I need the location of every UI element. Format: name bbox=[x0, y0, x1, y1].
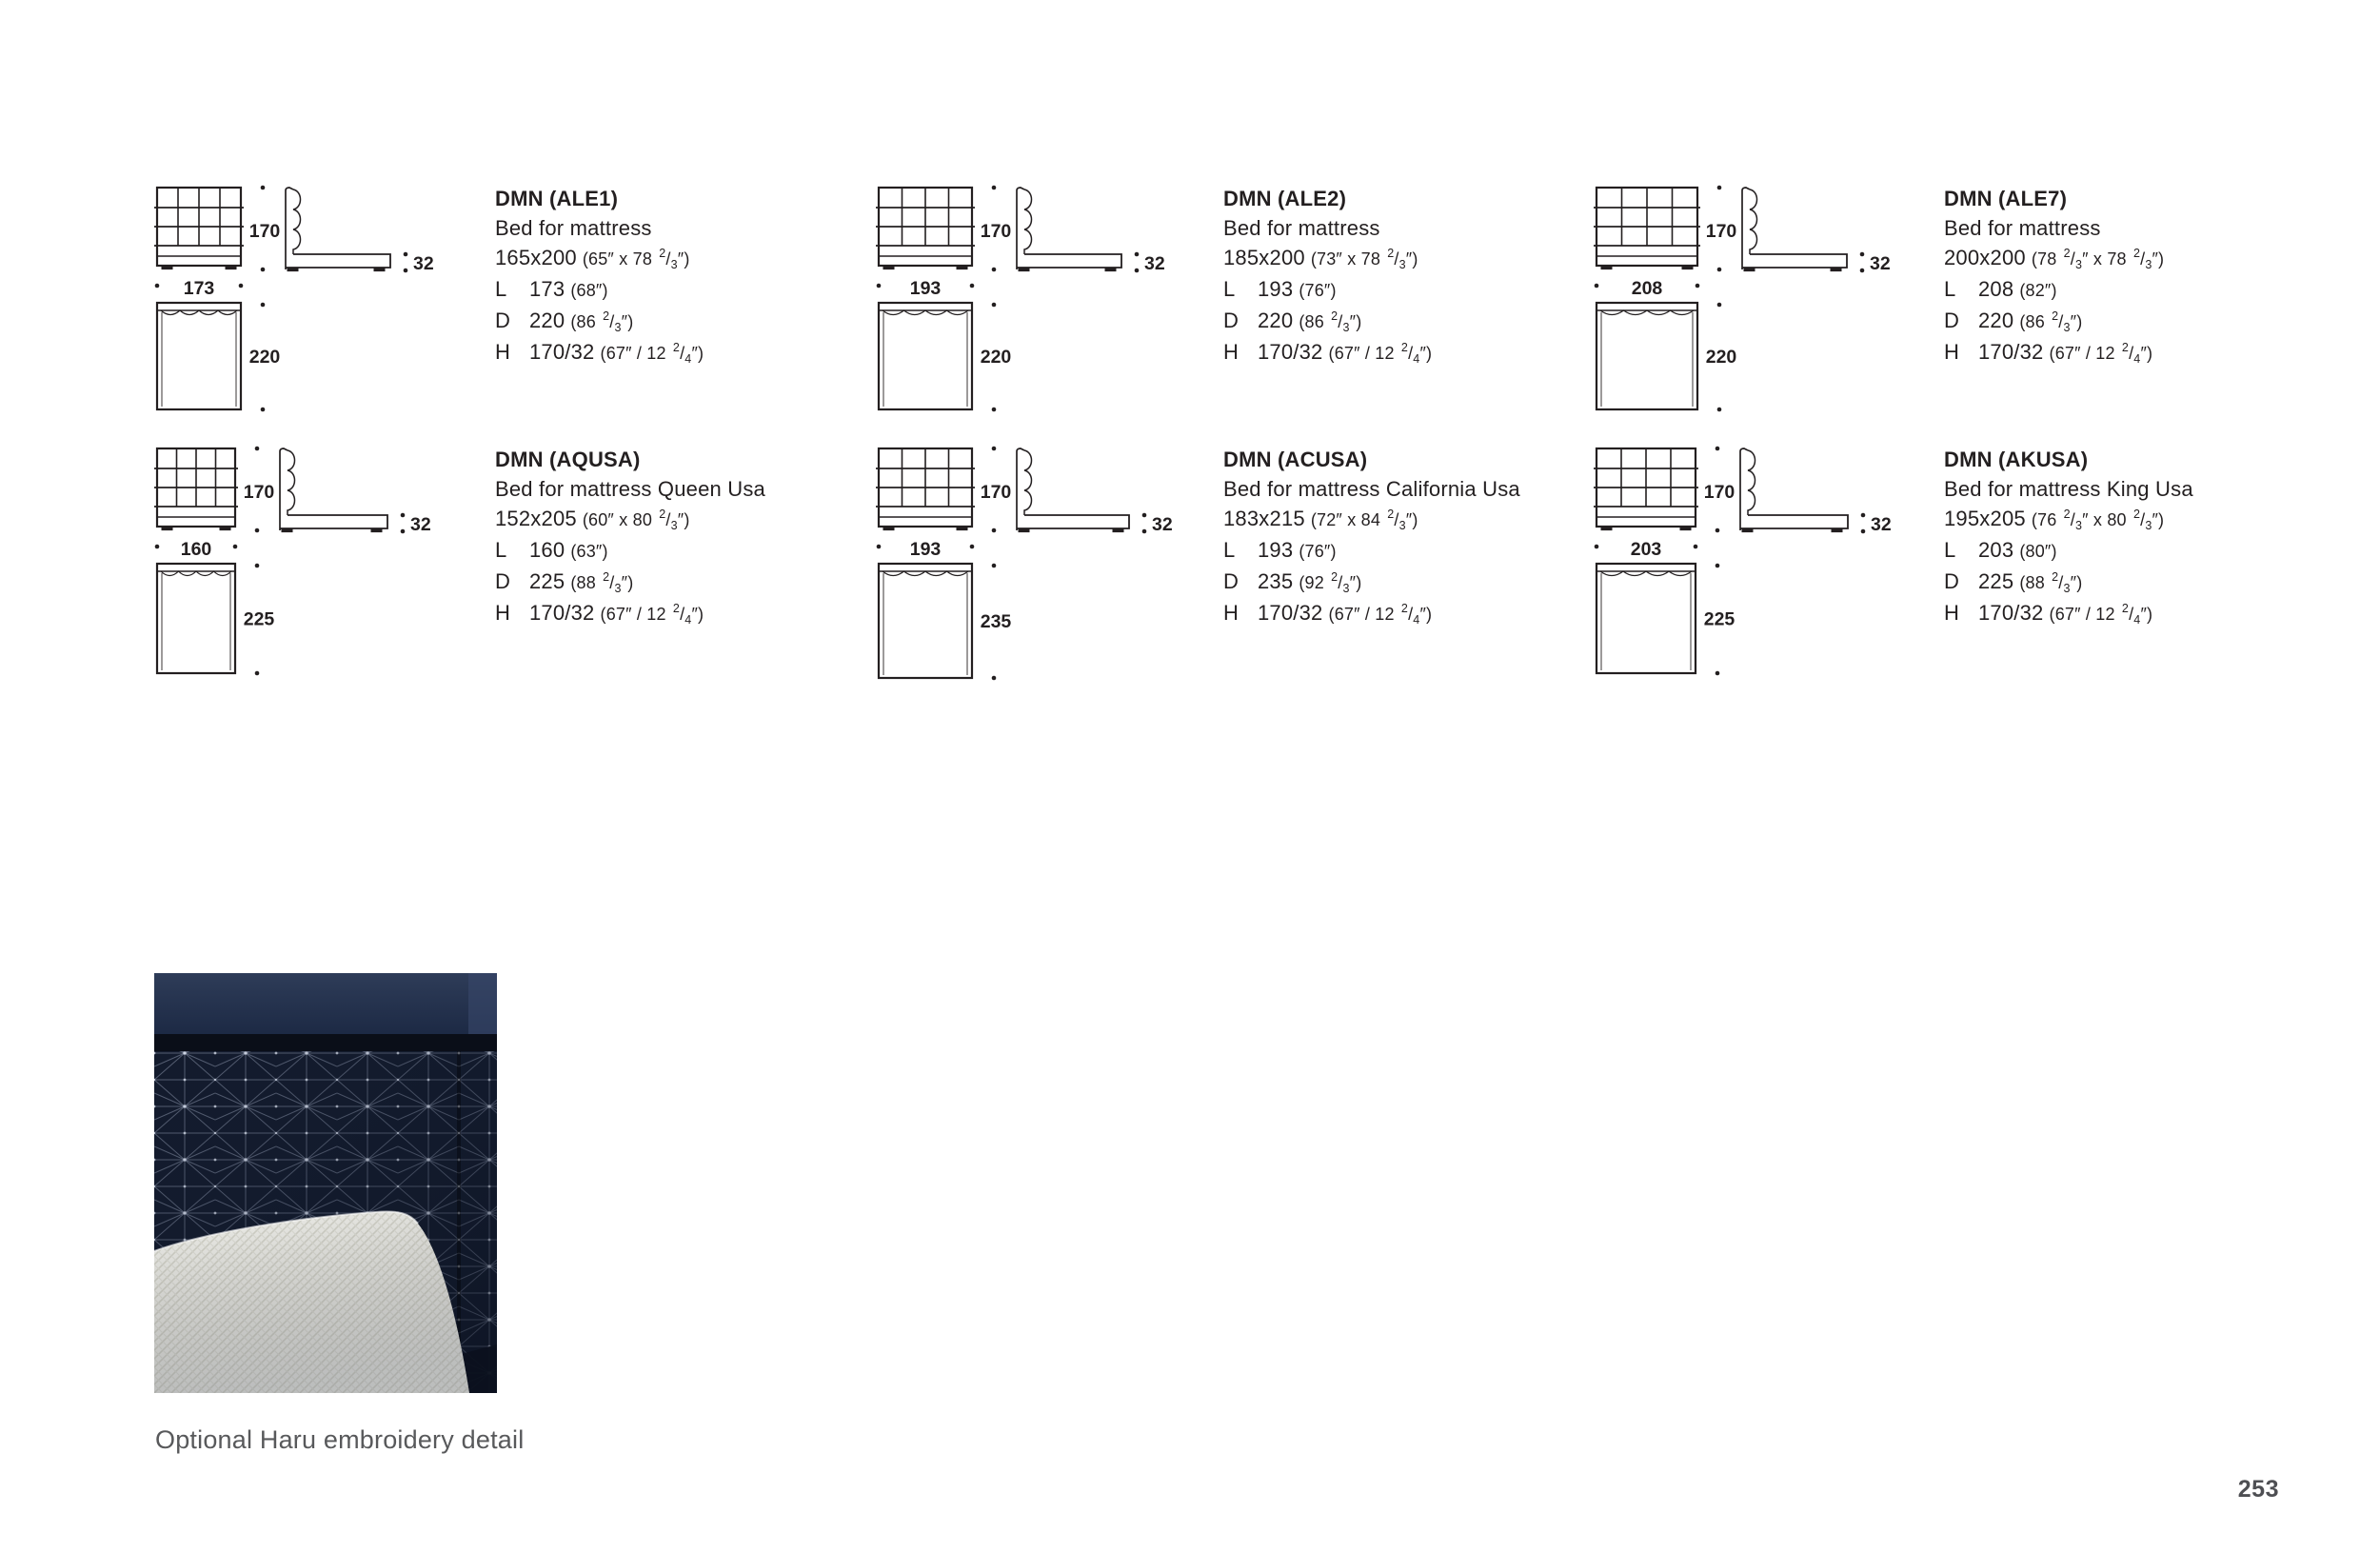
depth-label: D bbox=[495, 567, 529, 596]
frame-dimension: 32 bbox=[401, 513, 431, 535]
product-description: Bed for mattress bbox=[1223, 213, 1633, 243]
spec-text: DMN (AQUSA) Bed for mattress Queen Usa 1… bbox=[495, 445, 904, 629]
length-inches: (80″) bbox=[2019, 542, 2056, 561]
length-row: L193(76″) bbox=[1223, 535, 1633, 567]
frame-dim-label: 32 bbox=[413, 253, 434, 274]
mattress-size-row: 152x205(60″ x 80 2/3″) bbox=[495, 504, 904, 535]
product-description: Bed for mattress bbox=[1944, 213, 2353, 243]
product-description: Bed for mattress Queen Usa bbox=[495, 474, 904, 504]
bed-technical-drawing: 17020322532 bbox=[1591, 445, 1916, 686]
length-row: L160(63″) bbox=[495, 535, 904, 567]
product-spec-block: 17017322032 DMN (ALE1) Bed for mattress … bbox=[151, 184, 875, 441]
depth-dimension: 220 bbox=[981, 303, 1012, 412]
height-label: H bbox=[1944, 337, 1978, 367]
front-view bbox=[1594, 188, 1700, 269]
haru-embroidery-photo bbox=[154, 973, 497, 1393]
inch-fraction: 2/4 bbox=[2122, 600, 2141, 629]
height-label: H bbox=[495, 337, 529, 367]
length-cm: 193 bbox=[1258, 277, 1293, 301]
length-label: L bbox=[495, 274, 529, 304]
page-number: 253 bbox=[2238, 1476, 2279, 1503]
depth-row: D220(86 2/3″) bbox=[495, 306, 904, 337]
depth-dim-label: 225 bbox=[244, 609, 275, 630]
width-dimension: 193 bbox=[877, 539, 975, 560]
bed-technical-drawing: 17019322032 bbox=[873, 184, 1190, 422]
product-spec-block: 17020322532 DMN (AKUSA) Bed for mattress… bbox=[1591, 445, 2314, 702]
bed-technical-drawing: 17019323532 bbox=[873, 445, 1198, 690]
height-row: H170/32(67″ / 12 2/4″) bbox=[1223, 598, 1633, 629]
height-cm: 170/32 bbox=[1978, 340, 2044, 364]
plan-view bbox=[879, 564, 972, 678]
front-view bbox=[876, 188, 975, 269]
depth-cm: 225 bbox=[1978, 569, 2013, 593]
width-dim-label: 193 bbox=[910, 278, 942, 299]
height-inches: (67″ / 12 2/4″) bbox=[1329, 344, 1433, 363]
depth-dim-label: 220 bbox=[1706, 347, 1737, 368]
inch-fraction: 2/3 bbox=[2133, 245, 2152, 274]
height-inches: (67″ / 12 2/4″) bbox=[1329, 605, 1433, 624]
frame-dim-label: 32 bbox=[1144, 253, 1165, 274]
height-inches: (67″ / 12 2/4″) bbox=[2050, 605, 2153, 624]
width-dimension: 160 bbox=[155, 539, 238, 560]
height-cm: 170/32 bbox=[1258, 601, 1323, 625]
product-spec-block: 17019323532 DMN (ACUSA) Bed for mattress… bbox=[873, 445, 1597, 702]
length-cm: 193 bbox=[1258, 538, 1293, 562]
length-label: L bbox=[1944, 535, 1978, 565]
length-cm: 203 bbox=[1978, 538, 2013, 562]
height-dim-label: 170 bbox=[244, 482, 275, 503]
height-dimension: 170 bbox=[249, 186, 281, 272]
inch-fraction: 2/3 bbox=[1387, 506, 1406, 535]
height-dim-label: 170 bbox=[981, 482, 1012, 503]
frame-dim-label: 32 bbox=[410, 514, 431, 535]
height-dimension: 170 bbox=[1704, 447, 1735, 533]
product-spec-block: 17016022532 DMN (AQUSA) Bed for mattress… bbox=[151, 445, 875, 702]
height-cm: 170/32 bbox=[529, 340, 595, 364]
height-label: H bbox=[1223, 598, 1258, 627]
headboard-top-edge bbox=[154, 1034, 497, 1053]
height-dim-label: 170 bbox=[1704, 482, 1735, 503]
width-dim-label: 160 bbox=[181, 539, 212, 560]
width-dim-label: 208 bbox=[1632, 278, 1663, 299]
frame-dimension: 32 bbox=[1860, 252, 1891, 274]
depth-inches: (86 2/3″) bbox=[570, 312, 633, 331]
length-row: L193(76″) bbox=[1223, 274, 1633, 306]
depth-row: D220(86 2/3″) bbox=[1944, 306, 2353, 337]
product-code: DMN (AQUSA) bbox=[495, 445, 904, 474]
spec-text: DMN (ALE1) Bed for mattress 165x200(65″ … bbox=[495, 184, 904, 368]
product-description: Bed for mattress bbox=[495, 213, 904, 243]
length-cm: 160 bbox=[529, 538, 565, 562]
side-view bbox=[1017, 188, 1121, 271]
frame-dim-label: 32 bbox=[1870, 253, 1891, 274]
depth-dimension: 225 bbox=[244, 564, 275, 676]
length-cm: 173 bbox=[529, 277, 565, 301]
length-cm: 208 bbox=[1978, 277, 2013, 301]
width-dimension: 193 bbox=[877, 278, 975, 299]
inch-fraction: 2/3 bbox=[2052, 568, 2071, 598]
front-view bbox=[1594, 448, 1698, 530]
length-inches: (76″) bbox=[1299, 281, 1336, 300]
depth-inches: (92 2/3″) bbox=[1299, 573, 1361, 592]
length-label: L bbox=[495, 535, 529, 565]
inch-fraction: 2/3 bbox=[1331, 568, 1350, 598]
inch-fraction: 2/4 bbox=[2122, 339, 2141, 368]
mattress-size-row: 185x200(73″ x 78 2/3″) bbox=[1223, 243, 1633, 274]
length-label: L bbox=[1223, 274, 1258, 304]
inch-fraction: 2/3 bbox=[1387, 245, 1406, 274]
inch-fraction: 2/3 bbox=[2052, 308, 2071, 337]
photo-caption: Optional Haru embroidery detail bbox=[155, 1424, 524, 1455]
inch-fraction: 2/4 bbox=[673, 600, 692, 629]
spec-text: DMN (ALE2) Bed for mattress 185x200(73″ … bbox=[1223, 184, 1633, 368]
depth-dimension: 225 bbox=[1704, 564, 1735, 676]
height-row: H170/32(67″ / 12 2/4″) bbox=[1223, 337, 1633, 368]
height-dimension: 170 bbox=[981, 447, 1012, 533]
size-cm: 185x200 bbox=[1223, 246, 1305, 269]
depth-inches: (86 2/3″) bbox=[1299, 312, 1361, 331]
side-view bbox=[1017, 448, 1129, 532]
depth-dimension: 235 bbox=[981, 564, 1012, 681]
mattress-size-row: 165x200(65″ x 78 2/3″) bbox=[495, 243, 904, 274]
product-description: Bed for mattress California Usa bbox=[1223, 474, 1633, 504]
height-dim-label: 170 bbox=[981, 221, 1012, 242]
depth-cm: 220 bbox=[1258, 309, 1293, 332]
depth-row: D220(86 2/3″) bbox=[1223, 306, 1633, 337]
depth-label: D bbox=[1223, 306, 1258, 335]
mattress-size-row: 195x205(76 2/3″ x 80 2/3″) bbox=[1944, 504, 2353, 535]
height-dim-label: 170 bbox=[1706, 221, 1737, 242]
front-view bbox=[154, 448, 238, 530]
side-view bbox=[280, 448, 387, 532]
inch-fraction: 2/4 bbox=[673, 339, 692, 368]
depth-row: D225(88 2/3″) bbox=[495, 567, 904, 598]
product-code: DMN (ALE1) bbox=[495, 184, 904, 213]
inch-fraction: 2/3 bbox=[2064, 506, 2083, 535]
height-cm: 170/32 bbox=[529, 601, 595, 625]
frame-dimension: 32 bbox=[1861, 513, 1892, 535]
product-spec-block: 17020822032 DMN (ALE7) Bed for mattress … bbox=[1591, 184, 2314, 441]
depth-inches: (88 2/3″) bbox=[2019, 573, 2082, 592]
length-inches: (63″) bbox=[570, 542, 607, 561]
height-inches: (67″ / 12 2/4″) bbox=[601, 605, 704, 624]
frame-dimension: 32 bbox=[404, 252, 434, 274]
product-spec-block: 17019322032 DMN (ALE2) Bed for mattress … bbox=[873, 184, 1597, 441]
size-inches: (78 2/3″ x 78 2/3″) bbox=[2032, 249, 2164, 269]
width-dim-label: 193 bbox=[910, 539, 942, 560]
plan-view bbox=[1597, 303, 1697, 409]
bed-technical-drawing: 17020822032 bbox=[1591, 184, 1915, 422]
frame-dim-label: 32 bbox=[1152, 514, 1173, 535]
depth-row: D225(88 2/3″) bbox=[1944, 567, 2353, 598]
depth-cm: 235 bbox=[1258, 569, 1293, 593]
depth-label: D bbox=[1223, 567, 1258, 596]
depth-cm: 225 bbox=[529, 569, 565, 593]
size-inches: (76 2/3″ x 80 2/3″) bbox=[2032, 510, 2164, 529]
depth-inches: (88 2/3″) bbox=[570, 573, 633, 592]
inch-fraction: 2/3 bbox=[1331, 308, 1350, 337]
size-inches: (60″ x 80 2/3″) bbox=[583, 510, 690, 529]
catalog-page: 17017322032 DMN (ALE1) Bed for mattress … bbox=[0, 0, 2380, 1553]
height-inches: (67″ / 12 2/4″) bbox=[2050, 344, 2153, 363]
plan-view bbox=[879, 303, 972, 409]
length-inches: (68″) bbox=[570, 281, 607, 300]
width-dim-label: 203 bbox=[1631, 539, 1662, 560]
bed-technical-drawing: 17016022532 bbox=[151, 445, 456, 686]
depth-dim-label: 220 bbox=[249, 347, 281, 368]
depth-dim-label: 235 bbox=[981, 611, 1012, 632]
side-view bbox=[1742, 188, 1847, 271]
size-cm: 200x200 bbox=[1944, 246, 2026, 269]
depth-dim-label: 225 bbox=[1704, 609, 1735, 630]
size-cm: 183x215 bbox=[1223, 507, 1305, 530]
inch-fraction: 2/3 bbox=[659, 245, 678, 274]
height-row: H170/32(67″ / 12 2/4″) bbox=[1944, 337, 2353, 368]
height-row: H170/32(67″ / 12 2/4″) bbox=[495, 337, 904, 368]
front-view bbox=[876, 448, 975, 530]
inch-fraction: 2/3 bbox=[603, 308, 622, 337]
spec-text: DMN (AKUSA) Bed for mattress King Usa 19… bbox=[1944, 445, 2353, 629]
depth-dimension: 220 bbox=[1706, 303, 1737, 412]
mattress-size-row: 183x215(72″ x 84 2/3″) bbox=[1223, 504, 1633, 535]
height-cm: 170/32 bbox=[1978, 601, 2044, 625]
height-inches: (67″ / 12 2/4″) bbox=[601, 344, 704, 363]
headboard-photo-art bbox=[154, 973, 497, 1393]
spec-text: DMN (ACUSA) Bed for mattress California … bbox=[1223, 445, 1633, 629]
length-row: L208(82″) bbox=[1944, 274, 2353, 306]
inch-fraction: 2/3 bbox=[603, 568, 622, 598]
height-label: H bbox=[1944, 598, 1978, 627]
inch-fraction: 2/3 bbox=[2133, 506, 2152, 535]
side-view bbox=[286, 188, 390, 271]
length-label: L bbox=[1944, 274, 1978, 304]
height-cm: 170/32 bbox=[1258, 340, 1323, 364]
height-dimension: 170 bbox=[244, 447, 275, 533]
size-inches: (72″ x 84 2/3″) bbox=[1311, 510, 1418, 529]
product-description: Bed for mattress King Usa bbox=[1944, 474, 2353, 504]
plan-view bbox=[1597, 564, 1696, 673]
size-cm: 165x200 bbox=[495, 246, 577, 269]
width-dimension: 203 bbox=[1595, 539, 1698, 560]
height-dim-label: 170 bbox=[249, 221, 281, 242]
width-dim-label: 173 bbox=[184, 278, 215, 299]
size-inches: (73″ x 78 2/3″) bbox=[1311, 249, 1418, 269]
inch-fraction: 2/4 bbox=[1401, 600, 1420, 629]
width-dimension: 208 bbox=[1595, 278, 1700, 299]
length-inches: (82″) bbox=[2019, 281, 2056, 300]
height-label: H bbox=[495, 598, 529, 627]
product-code: DMN (ALE7) bbox=[1944, 184, 2353, 213]
bed-technical-drawing: 17017322032 bbox=[151, 184, 459, 422]
front-view bbox=[154, 188, 244, 269]
product-code: DMN (AKUSA) bbox=[1944, 445, 2353, 474]
depth-dimension: 220 bbox=[249, 303, 281, 412]
frame-dimension: 32 bbox=[1142, 513, 1173, 535]
depth-label: D bbox=[495, 306, 529, 335]
height-row: H170/32(67″ / 12 2/4″) bbox=[495, 598, 904, 629]
plan-view bbox=[157, 564, 235, 673]
size-inches: (65″ x 78 2/3″) bbox=[583, 249, 690, 269]
inch-fraction: 2/4 bbox=[1401, 339, 1420, 368]
size-cm: 152x205 bbox=[495, 507, 577, 530]
inch-fraction: 2/3 bbox=[2064, 245, 2083, 274]
length-label: L bbox=[1223, 535, 1258, 565]
depth-inches: (86 2/3″) bbox=[2019, 312, 2082, 331]
length-row: L203(80″) bbox=[1944, 535, 2353, 567]
height-label: H bbox=[1223, 337, 1258, 367]
depth-row: D235(92 2/3″) bbox=[1223, 567, 1633, 598]
depth-dim-label: 220 bbox=[981, 347, 1012, 368]
depth-cm: 220 bbox=[1978, 309, 2013, 332]
frame-dim-label: 32 bbox=[1871, 514, 1892, 535]
side-view bbox=[1740, 448, 1848, 532]
height-dimension: 170 bbox=[1706, 186, 1737, 272]
height-row: H170/32(67″ / 12 2/4″) bbox=[1944, 598, 2353, 629]
frame-dimension: 32 bbox=[1135, 252, 1165, 274]
product-code: DMN (ALE2) bbox=[1223, 184, 1633, 213]
depth-label: D bbox=[1944, 306, 1978, 335]
size-cm: 195x205 bbox=[1944, 507, 2026, 530]
depth-label: D bbox=[1944, 567, 1978, 596]
spec-text: DMN (ALE7) Bed for mattress 200x200(78 2… bbox=[1944, 184, 2353, 368]
length-row: L173(68″) bbox=[495, 274, 904, 306]
product-code: DMN (ACUSA) bbox=[1223, 445, 1633, 474]
width-dimension: 173 bbox=[155, 278, 244, 299]
photo-top-band bbox=[154, 973, 497, 1036]
length-inches: (76″) bbox=[1299, 542, 1336, 561]
mattress-size-row: 200x200(78 2/3″ x 78 2/3″) bbox=[1944, 243, 2353, 274]
depth-cm: 220 bbox=[529, 309, 565, 332]
plan-view bbox=[157, 303, 241, 409]
height-dimension: 170 bbox=[981, 186, 1012, 272]
inch-fraction: 2/3 bbox=[659, 506, 678, 535]
